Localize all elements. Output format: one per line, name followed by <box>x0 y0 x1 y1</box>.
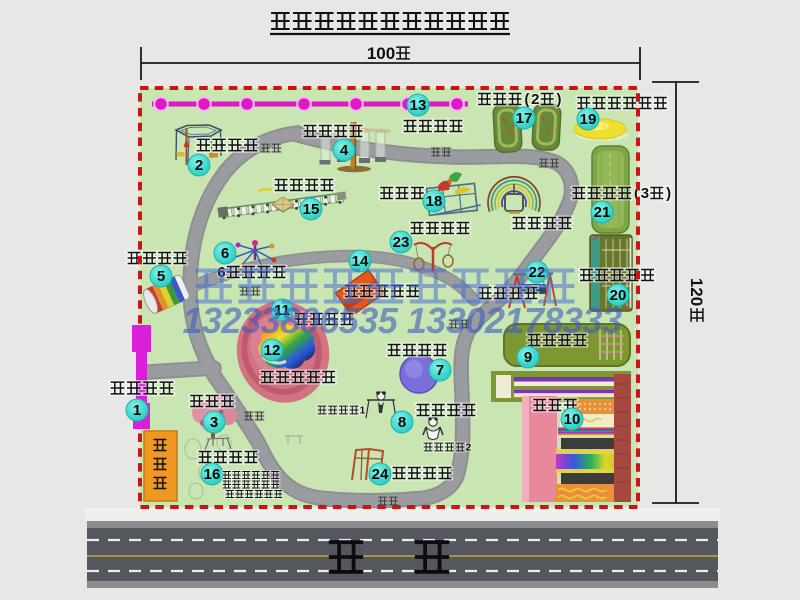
svg-text:6: 6 <box>221 245 229 262</box>
svg-text:): ) <box>666 185 671 202</box>
svg-text:2: 2 <box>465 442 471 454</box>
svg-text:5: 5 <box>157 268 165 285</box>
svg-text:24: 24 <box>372 466 389 483</box>
svg-text:4: 4 <box>340 142 349 159</box>
svg-text:10: 10 <box>564 411 581 428</box>
svg-text:100: 100 <box>367 44 395 63</box>
svg-text:15: 15 <box>303 201 320 218</box>
svg-text:13233806535 13302178333: 13233806535 13302178333 <box>183 300 622 341</box>
svg-text:1: 1 <box>359 405 365 417</box>
svg-text:2: 2 <box>531 91 539 108</box>
svg-text:8: 8 <box>398 414 406 431</box>
svg-text:120: 120 <box>687 278 706 306</box>
svg-text:9: 9 <box>524 349 532 366</box>
svg-text:19: 19 <box>580 111 597 128</box>
svg-text:3: 3 <box>210 414 218 431</box>
svg-text:): ) <box>557 91 562 108</box>
svg-text:23: 23 <box>393 234 410 251</box>
svg-text:13: 13 <box>410 97 427 114</box>
svg-text:21: 21 <box>594 204 611 221</box>
svg-text:2: 2 <box>195 157 203 174</box>
svg-text:16: 16 <box>204 466 221 483</box>
svg-text:(: ( <box>524 91 529 108</box>
svg-text:1: 1 <box>133 402 141 419</box>
svg-text:17: 17 <box>516 110 533 127</box>
svg-text:3: 3 <box>641 185 649 202</box>
svg-text:7: 7 <box>436 362 444 379</box>
svg-text:12: 12 <box>264 342 281 359</box>
svg-text:18: 18 <box>426 193 443 210</box>
